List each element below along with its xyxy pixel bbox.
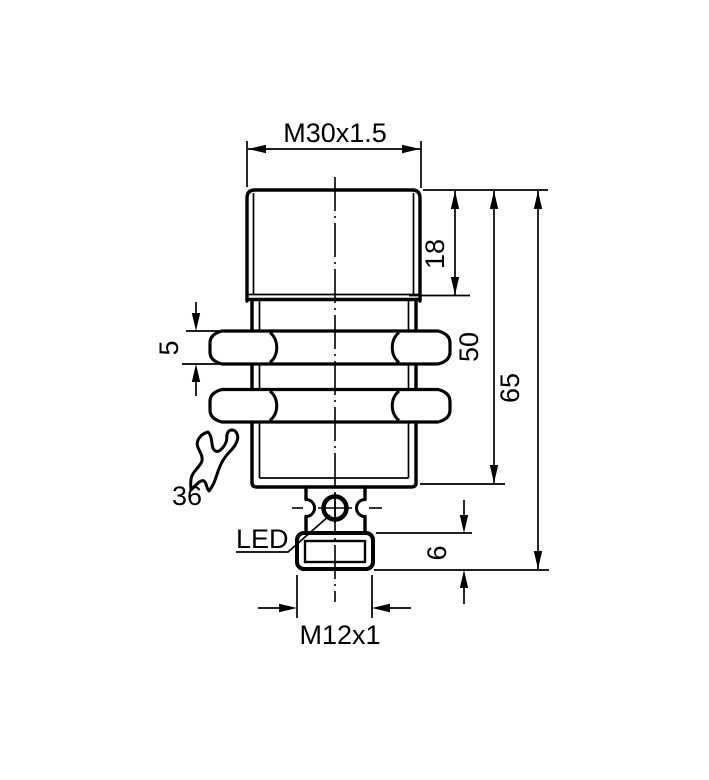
- barrel-length-label: 50: [454, 332, 484, 362]
- head-length-label: 18: [420, 239, 450, 269]
- hex-nut-top: [210, 331, 450, 364]
- m12-thread-label: M12x1: [299, 620, 380, 650]
- neck-notch-right: [357, 500, 366, 517]
- wrench-size-label: 36: [172, 481, 202, 511]
- hex-nut-bottom-outline: [210, 390, 450, 423]
- led-text: LED: [236, 524, 289, 554]
- technical-drawing-canvas: 36 M30x1.5 18: [0, 0, 709, 780]
- neck-notch-left: [306, 500, 315, 517]
- total-length-label: 65: [495, 373, 525, 403]
- hex-nut-top-outline: [210, 331, 450, 364]
- nut-thickness-label: 5: [154, 340, 184, 355]
- m30-thread-label: M30x1.5: [283, 118, 387, 148]
- connector-thread-length-label: 6: [422, 545, 452, 560]
- sensor-dimension-drawing: 36 M30x1.5 18: [0, 0, 709, 780]
- hex-nut-bottom: [210, 390, 450, 423]
